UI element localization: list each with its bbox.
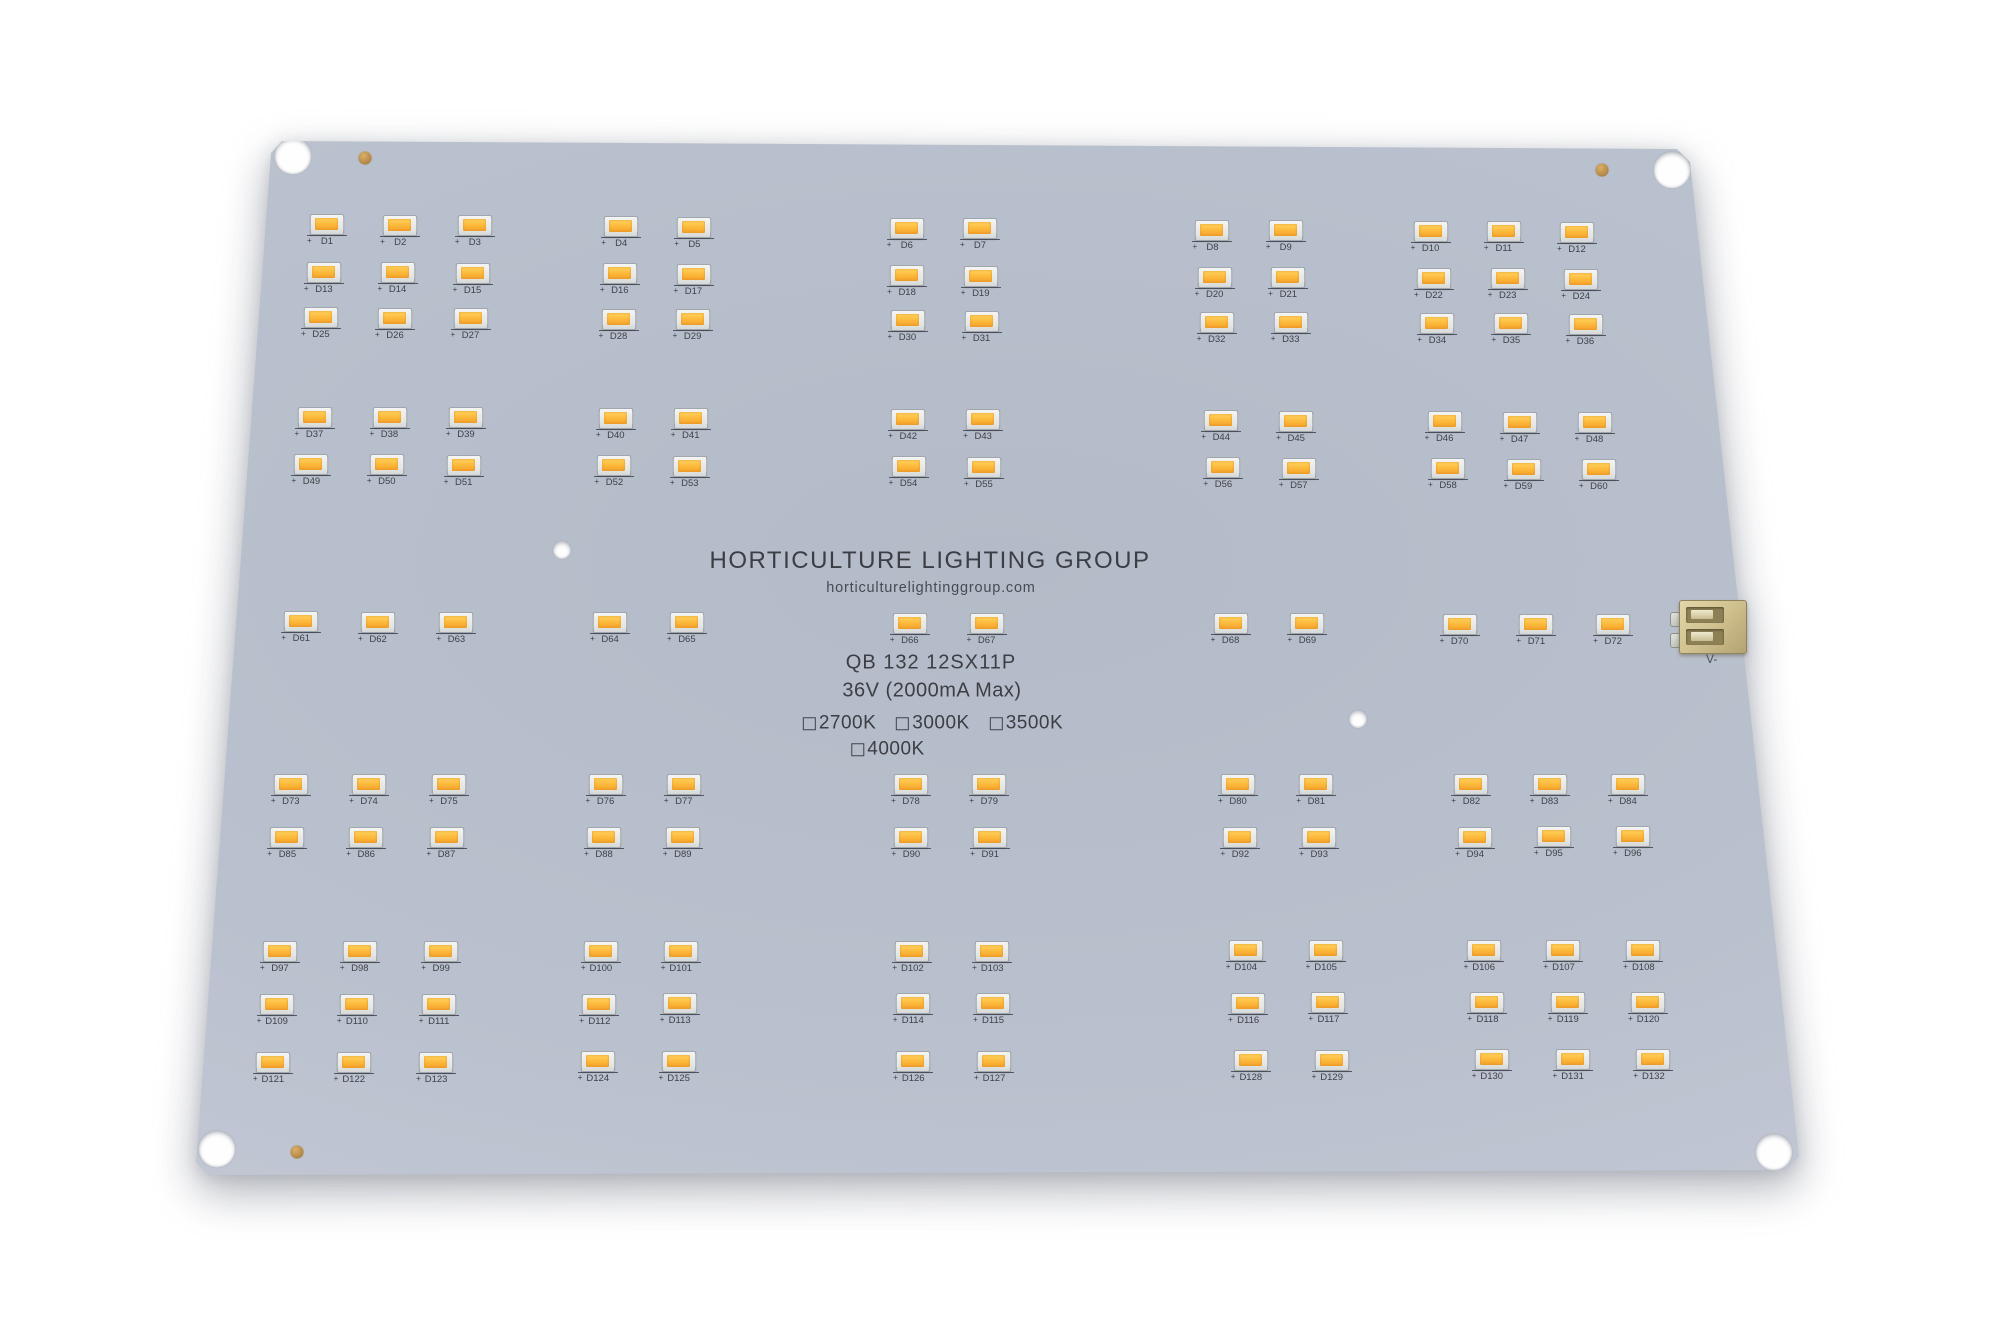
led-phosphor — [1205, 316, 1228, 328]
led-phosphor — [900, 945, 923, 957]
led-d126: +D126 — [896, 1051, 930, 1085]
polarity-plus-mark: + — [1192, 242, 1197, 252]
led-silkscreen: +D105 — [1306, 961, 1346, 973]
led-phosphor — [678, 460, 701, 472]
led-silkscreen: +D89 — [663, 848, 703, 860]
led-d80: +D80 — [1221, 774, 1255, 808]
polarity-plus-mark: + — [1296, 796, 1301, 806]
led-d15: +D15 — [456, 263, 490, 297]
led-silkscreen: +D81 — [1296, 795, 1336, 807]
led-d64: +D64 — [593, 612, 627, 646]
led-label: D78 — [902, 796, 919, 807]
led-d131: +D131 — [1556, 1049, 1590, 1083]
led-phosphor — [1436, 462, 1459, 474]
led-d46: +D46 — [1428, 411, 1462, 445]
led-label: D115 — [982, 1015, 1004, 1026]
led-label: D91 — [982, 849, 999, 860]
led-phosphor — [1425, 317, 1448, 329]
polarity-plus-mark: + — [890, 635, 895, 645]
led-silkscreen: +D127 — [974, 1072, 1014, 1084]
led-d31: +D31 — [965, 311, 999, 345]
led-d9: +D9 — [1269, 220, 1303, 254]
led-package — [1560, 222, 1594, 243]
led-d77: +D77 — [667, 774, 701, 808]
led-label: D103 — [981, 963, 1004, 974]
led-phosphor — [897, 460, 920, 472]
cct-option-label: 4000K — [867, 738, 924, 760]
led-phosphor — [454, 411, 477, 423]
led-silkscreen: +D110 — [337, 1015, 377, 1027]
led-package — [966, 409, 1000, 430]
led-package — [381, 262, 415, 283]
led-package — [976, 993, 1010, 1014]
led-package — [599, 408, 633, 429]
led-label: D8 — [1206, 242, 1218, 253]
polarity-plus-mark: + — [291, 476, 296, 486]
led-package — [1616, 826, 1650, 847]
cct-option-3500k: 3500K — [990, 712, 1063, 734]
led-label: D129 — [1320, 1072, 1343, 1083]
led-label: D54 — [900, 478, 917, 489]
led-package — [424, 941, 458, 962]
led-package — [1596, 614, 1630, 635]
led-silkscreen: +D5 — [674, 238, 714, 250]
led-phosphor — [299, 458, 322, 470]
led-phosphor — [602, 459, 625, 471]
led-silkscreen: +D16 — [600, 284, 640, 296]
led-phosphor — [463, 219, 486, 231]
led-d74: +D74 — [352, 774, 386, 808]
polarity-plus-mark: + — [1428, 480, 1433, 490]
led-phosphor — [1574, 318, 1597, 330]
led-label: D17 — [685, 286, 702, 297]
led-phosphor — [899, 831, 922, 843]
model-number: QB 132 12SX11P — [846, 652, 1016, 675]
led-package — [963, 218, 997, 239]
checkbox-icon — [896, 717, 909, 730]
led-silkscreen: +D38 — [370, 428, 410, 440]
led-d30: +D30 — [891, 310, 925, 344]
polarity-plus-mark: + — [1451, 796, 1456, 806]
led-phosphor — [975, 617, 998, 629]
led-silkscreen: +D115 — [973, 1014, 1013, 1026]
led-d2: +D2 — [383, 215, 417, 249]
led-phosphor — [378, 411, 401, 423]
led-package — [896, 1051, 930, 1072]
led-phosphor — [1209, 414, 1232, 426]
led-quantum-board: HORTICULTURE LIGHTING GROUP horticulture… — [0, 0, 2000, 1341]
led-d109: +D109 — [260, 994, 294, 1028]
led-package — [340, 994, 374, 1015]
led-label: D59 — [1515, 481, 1532, 492]
led-silkscreen: +D67 — [967, 634, 1007, 646]
polarity-plus-mark: + — [1553, 1071, 1558, 1081]
led-d37: +D37 — [298, 407, 332, 441]
led-label: D73 — [282, 796, 299, 807]
led-package — [663, 993, 697, 1014]
led-silkscreen: +D126 — [893, 1072, 933, 1084]
polarity-plus-mark: + — [1593, 636, 1598, 646]
led-phosphor — [980, 945, 1003, 957]
led-silkscreen: +D62 — [358, 633, 398, 645]
polarity-plus-mark: + — [601, 238, 606, 248]
led-label: D79 — [981, 796, 998, 807]
led-phosphor — [1524, 618, 1547, 630]
led-d98: +D98 — [343, 941, 377, 975]
led-phosphor — [348, 945, 371, 957]
led-package — [456, 263, 490, 284]
led-package — [892, 456, 926, 477]
center-hole-right — [1349, 710, 1367, 728]
led-phosphor — [586, 1055, 609, 1067]
led-label: D16 — [611, 285, 628, 296]
polarity-plus-mark: + — [586, 796, 591, 806]
led-silkscreen: +D113 — [660, 1014, 700, 1026]
led-d108: +D108 — [1626, 940, 1660, 974]
led-d101: +D101 — [664, 941, 698, 975]
led-phosphor — [681, 313, 704, 325]
led-label: D29 — [684, 331, 701, 342]
polarity-plus-mark: + — [1608, 796, 1613, 806]
led-d107: +D107 — [1546, 940, 1580, 974]
led-package — [419, 1052, 453, 1073]
led-d17: +D17 — [677, 264, 711, 298]
led-phosphor — [1320, 1054, 1343, 1066]
led-phosphor — [1492, 225, 1515, 237]
led-label: D49 — [303, 476, 320, 487]
polarity-plus-mark: + — [893, 1073, 898, 1083]
led-label: D76 — [597, 796, 614, 807]
led-silkscreen: +D50 — [367, 475, 407, 487]
polarity-plus-mark: + — [1491, 335, 1496, 345]
polarity-plus-mark: + — [661, 963, 666, 973]
led-silkscreen: +D25 — [301, 328, 341, 340]
led-label: D66 — [901, 635, 918, 646]
led-label: D44 — [1213, 432, 1230, 443]
led-package — [274, 774, 308, 795]
led-phosphor — [309, 311, 332, 323]
led-phosphor — [682, 268, 705, 280]
polarity-plus-mark: + — [1411, 243, 1416, 253]
polarity-plus-mark: + — [1467, 1014, 1472, 1024]
led-label: D95 — [1545, 848, 1562, 859]
polarity-plus-mark: + — [1557, 244, 1562, 254]
led-phosphor — [342, 1056, 365, 1068]
led-label: D93 — [1311, 849, 1328, 860]
led-label: D70 — [1451, 636, 1468, 647]
led-d103: +D103 — [975, 941, 1009, 975]
led-d82: +D82 — [1454, 774, 1488, 808]
led-phosphor — [345, 998, 368, 1010]
led-silkscreen: +D56 — [1203, 478, 1243, 490]
polarity-plus-mark: + — [893, 1015, 898, 1025]
led-phosphor — [667, 1055, 690, 1067]
led-phosphor — [982, 1055, 1005, 1067]
led-silkscreen: +D14 — [378, 283, 418, 295]
led-d81: +D81 — [1299, 774, 1333, 808]
led-phosphor — [1512, 463, 1535, 475]
polarity-plus-mark: + — [375, 330, 380, 340]
led-label: D43 — [975, 431, 992, 442]
led-silkscreen: +D4 — [601, 237, 641, 249]
led-silkscreen: +D1 — [307, 235, 347, 247]
led-label: D5 — [688, 239, 700, 250]
led-d26: +D26 — [378, 308, 412, 342]
polarity-plus-mark: + — [358, 634, 363, 644]
polarity-plus-mark: + — [446, 429, 451, 439]
led-d96: +D96 — [1616, 826, 1650, 860]
led-package — [1611, 774, 1645, 795]
led-package — [666, 827, 700, 848]
led-package — [1302, 827, 1336, 848]
polarity-plus-mark: + — [596, 430, 601, 440]
polarity-plus-mark: + — [427, 849, 432, 859]
led-silkscreen: +D124 — [578, 1072, 618, 1084]
led-package — [1475, 1049, 1509, 1070]
connector-slot — [1686, 629, 1724, 645]
led-d115: +D115 — [976, 993, 1010, 1027]
led-silkscreen: +D28 — [599, 330, 639, 342]
polarity-plus-mark: + — [1440, 636, 1445, 646]
led-label: D116 — [1237, 1015, 1259, 1026]
led-package — [1206, 457, 1240, 478]
polarity-plus-mark: + — [891, 796, 896, 806]
led-package — [378, 308, 412, 329]
led-label: D85 — [279, 849, 296, 860]
led-package — [662, 1051, 696, 1072]
led-silkscreen: +D23 — [1488, 289, 1528, 301]
led-label: D108 — [1632, 962, 1655, 973]
led-silkscreen: +D83 — [1530, 795, 1570, 807]
polarity-plus-mark: + — [378, 284, 383, 294]
led-phosphor — [1287, 462, 1310, 474]
led-label: D28 — [610, 331, 627, 342]
polarity-plus-mark: + — [1566, 336, 1571, 346]
led-silkscreen: +D11 — [1484, 242, 1524, 254]
led-silkscreen: +D78 — [891, 795, 931, 807]
led-phosphor — [386, 266, 409, 278]
led-package — [604, 216, 638, 237]
led-label: D37 — [306, 429, 323, 440]
led-silkscreen: +D12 — [1557, 243, 1597, 255]
led-label: D42 — [900, 431, 917, 442]
led-package — [1507, 459, 1541, 480]
connector-polarity-label: V- — [1706, 652, 1717, 666]
led-d8: +D8 — [1195, 220, 1229, 254]
mounting-hole-top-left — [275, 138, 312, 175]
led-label: D94 — [1467, 849, 1484, 860]
led-label: D63 — [448, 634, 465, 645]
led-d42: +D42 — [891, 409, 925, 443]
led-d50: +D50 — [370, 454, 404, 488]
led-label: D12 — [1568, 244, 1585, 255]
led-phosphor — [1314, 944, 1337, 956]
led-label: D15 — [464, 285, 481, 296]
led-phosphor — [895, 269, 918, 281]
led-d25: +D25 — [304, 307, 338, 341]
led-silkscreen: +D59 — [1504, 480, 1544, 492]
polarity-plus-mark: + — [673, 331, 678, 341]
led-package — [1582, 459, 1616, 480]
led-phosphor — [1641, 1053, 1664, 1065]
polarity-plus-mark: + — [1299, 849, 1304, 859]
polarity-plus-mark: + — [599, 331, 604, 341]
led-label: D41 — [682, 430, 699, 441]
led-package — [602, 309, 636, 330]
led-d116: +D116 — [1231, 993, 1265, 1027]
led-package — [967, 457, 1001, 478]
led-label: D96 — [1624, 848, 1641, 859]
led-package — [449, 407, 483, 428]
led-phosphor — [669, 945, 692, 957]
led-d118: +D118 — [1470, 992, 1504, 1026]
led-phosphor — [1538, 778, 1561, 790]
led-label: D45 — [1288, 433, 1305, 444]
led-label: D50 — [378, 476, 395, 487]
led-package — [1519, 614, 1553, 635]
polarity-plus-mark: + — [1628, 1014, 1633, 1024]
led-silkscreen: +D15 — [453, 284, 493, 296]
led-d48: +D48 — [1578, 412, 1612, 446]
led-silkscreen: +D6 — [887, 239, 927, 251]
led-package — [1443, 614, 1477, 635]
led-label: D74 — [360, 796, 377, 807]
led-silkscreen: +D95 — [1534, 847, 1574, 859]
polarity-plus-mark: + — [670, 478, 675, 488]
led-phosphor — [1236, 997, 1259, 1009]
led-phosphor — [607, 313, 630, 325]
led-label: D92 — [1232, 849, 1249, 860]
led-package — [973, 827, 1007, 848]
led-phosphor — [1542, 830, 1565, 842]
led-label: D118 — [1476, 1014, 1498, 1025]
led-label: D34 — [1429, 335, 1446, 346]
polarity-plus-mark: + — [964, 479, 969, 489]
led-silkscreen: +D77 — [664, 795, 704, 807]
led-label: D104 — [1234, 962, 1257, 973]
led-label: D62 — [369, 634, 386, 645]
pcb-surface: HORTICULTURE LIGHTING GROUP horticulture… — [0, 0, 2000, 1341]
led-label: D24 — [1573, 291, 1590, 302]
cct-options-row-2: 4000K — [841, 738, 934, 762]
led-d38: +D38 — [373, 407, 407, 441]
led-silkscreen: +D69 — [1287, 634, 1327, 646]
led-label: D89 — [674, 849, 691, 860]
led-d127: +D127 — [977, 1051, 1011, 1085]
led-label: D40 — [607, 430, 624, 441]
led-label: D88 — [595, 849, 612, 860]
led-phosphor — [671, 831, 694, 843]
led-package — [1626, 940, 1660, 961]
led-package — [1311, 992, 1345, 1013]
led-silkscreen: +D82 — [1451, 795, 1491, 807]
led-label: D38 — [381, 429, 398, 440]
led-label: D119 — [1557, 1014, 1579, 1025]
led-d59: +D59 — [1507, 459, 1541, 493]
led-silkscreen: +D30 — [888, 331, 928, 343]
led-d120: +D120 — [1631, 992, 1665, 1026]
polarity-plus-mark: + — [1271, 334, 1276, 344]
led-silkscreen: +D13 — [304, 283, 344, 295]
led-d27: +D27 — [454, 308, 488, 342]
led-silkscreen: +D117 — [1308, 1013, 1348, 1025]
led-label: D69 — [1299, 635, 1316, 646]
led-phosphor — [1616, 778, 1639, 790]
led-d72: +D72 — [1596, 614, 1630, 648]
led-phosphor — [977, 778, 1000, 790]
checkbox-icon — [803, 717, 816, 730]
led-phosphor — [435, 831, 458, 843]
led-package — [1470, 992, 1504, 1013]
led-label: D106 — [1472, 962, 1495, 973]
polarity-plus-mark: + — [1308, 1014, 1313, 1024]
led-phosphor — [1561, 1053, 1584, 1065]
led-label: D26 — [386, 330, 403, 341]
led-label: D23 — [1499, 290, 1516, 301]
polarity-plus-mark: + — [1197, 334, 1202, 344]
led-d112: +D112 — [582, 994, 616, 1028]
led-phosphor — [303, 411, 326, 423]
led-label: D113 — [669, 1015, 691, 1026]
led-d67: +D67 — [970, 613, 1004, 647]
led-package — [1578, 412, 1612, 433]
led-phosphor — [1304, 778, 1327, 790]
polarity-plus-mark: + — [346, 849, 351, 859]
led-phosphor — [896, 413, 919, 425]
polarity-plus-mark: + — [271, 796, 276, 806]
polarity-plus-mark: + — [973, 1015, 978, 1025]
led-label: D55 — [975, 479, 992, 490]
led-package — [676, 309, 710, 330]
led-label: D126 — [902, 1073, 925, 1084]
led-silkscreen: +D63 — [436, 633, 476, 645]
led-silkscreen: +D131 — [1553, 1070, 1593, 1082]
led-silkscreen: +D94 — [1455, 848, 1495, 860]
polarity-plus-mark: + — [421, 963, 426, 973]
polarity-plus-mark: + — [664, 796, 669, 806]
led-phosphor — [970, 315, 993, 327]
led-silkscreen: +D53 — [670, 477, 710, 489]
led-d43: +D43 — [966, 409, 1000, 443]
polarity-plus-mark: + — [1534, 848, 1539, 858]
mounting-hole-top-right — [1654, 152, 1691, 189]
polarity-plus-mark: + — [581, 963, 586, 973]
led-phosphor — [971, 413, 994, 425]
polarity-plus-mark: + — [1464, 962, 1469, 972]
led-package — [584, 941, 618, 962]
led-silkscreen: +D39 — [446, 428, 486, 440]
polarity-plus-mark: + — [1211, 635, 1216, 645]
led-d68: +D68 — [1214, 613, 1248, 647]
led-silkscreen: +D106 — [1464, 961, 1504, 973]
led-silkscreen: +D120 — [1628, 1013, 1668, 1025]
polarity-plus-mark: + — [444, 477, 449, 487]
led-d45: +D45 — [1279, 411, 1313, 445]
led-phosphor — [1226, 778, 1249, 790]
polarity-plus-mark: + — [304, 284, 309, 294]
led-d61: +D61 — [284, 611, 318, 645]
polarity-plus-mark: + — [887, 287, 892, 297]
polarity-plus-mark: + — [579, 1016, 584, 1026]
polarity-plus-mark: + — [380, 237, 385, 247]
led-phosphor — [1631, 944, 1654, 956]
led-silkscreen: +D17 — [674, 285, 714, 297]
led-d119: +D119 — [1551, 992, 1585, 1026]
led-d60: +D60 — [1582, 459, 1616, 493]
led-silkscreen: +D31 — [962, 332, 1002, 344]
led-label: D77 — [675, 796, 692, 807]
led-d41: +D41 — [674, 408, 708, 442]
